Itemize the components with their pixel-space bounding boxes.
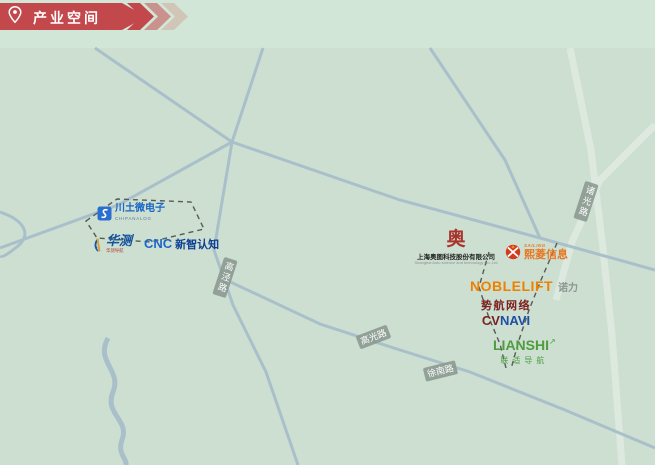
aotu-seal-glyph: 奥 [446,230,465,249]
company-brand: SAILING [524,244,548,248]
page-title: 产业空间 [33,8,101,28]
lianshi-arrow-icon: ↗ [549,337,556,346]
company-logo-text: CVNAVI [482,312,530,330]
company-name: 新智认知 [175,240,219,251]
company-sub: 华测导航 [106,249,124,253]
company-marker-sailing[interactable]: SAILING 熙菱信息 [505,242,568,261]
company-logo-text: CNC [144,237,172,250]
company-marker-cnc[interactable]: CNC 新智认知 [144,237,219,251]
company-marker-cvnavi[interactable]: 势航网络 CVNAVI [481,300,531,330]
huace-logo-icon [85,236,103,254]
company-brand: CHIPANALOG [115,216,152,220]
company-logo-text: LIANSHI↗ [493,337,556,355]
company-name: 势航网络 [481,300,531,312]
company-name: 华测 [106,234,138,247]
chipanalog-logo-icon [97,206,112,221]
section-banner: 产业空间 [0,0,220,34]
industry-space-map-page: 产业空间 高泾路 高光路 徐南路 诸光路 川土微电子 CHIPANALOG 华测… [0,0,655,465]
map-canvas[interactable] [0,0,655,465]
company-logo-text: NOBLELIFT [470,279,553,293]
company-name: 联适导航 [500,357,548,365]
company-marker-lianshi[interactable]: LIANSHI↗ 联适导航 [493,337,556,365]
company-marker-aotu[interactable]: 奥 上海奥图科技股份有限公司 Shanghai Aotu science and… [416,230,496,269]
company-marker-huace[interactable]: 华测 华测导航 [85,234,138,255]
sailing-logo-icon [505,244,521,260]
company-name: 川土微电子 [115,204,182,215]
company-name: 诺力 [558,279,578,294]
company-name: 上海奥图科技股份有限公司 [417,251,495,261]
company-sub: Shanghai Aotu science and technology Co.… [415,261,498,265]
company-marker-chipanalog[interactable]: 川土微电子 CHIPANALOG [97,204,182,223]
company-name: 熙菱信息 [524,250,568,261]
company-marker-noblelift[interactable]: NOBLELIFT 诺力 [470,279,578,294]
